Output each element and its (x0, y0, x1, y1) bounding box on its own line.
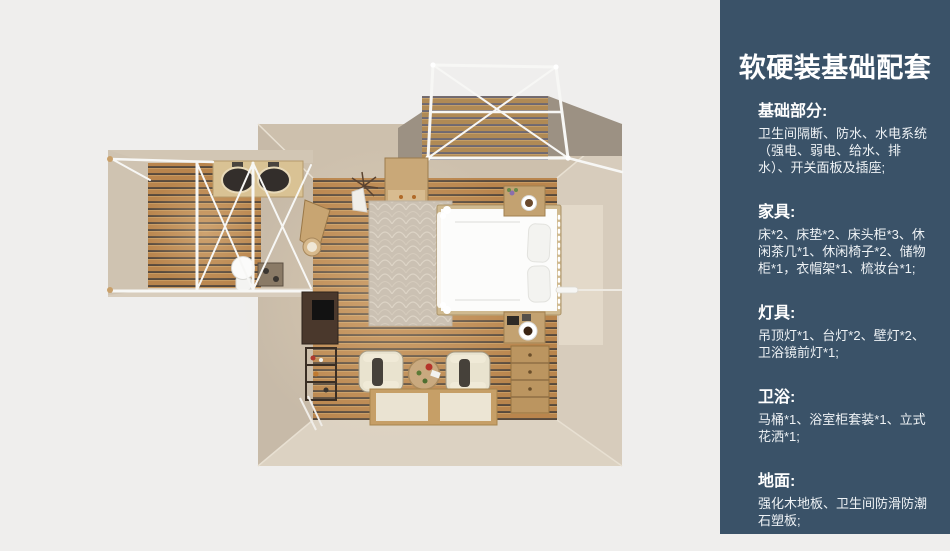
storage-cabinet (385, 158, 428, 203)
section-basics-heading: 基础部分: (758, 97, 932, 121)
section-lighting-heading: 灯具: (758, 299, 932, 323)
panel-title: 软硬装基础配套 (720, 46, 950, 85)
floorplan-svg (0, 0, 720, 534)
section-bathroom-body: 马桶*1、浴室柜套装*1、立式花洒*1; (758, 411, 932, 445)
section-flooring-body: 强化木地板、卫生间防滑防潮石塑板; (758, 495, 932, 529)
section-lighting: 灯具: 吊顶灯*1、台灯*2、壁灯*2、卫浴镜前灯*1; (758, 299, 932, 361)
double-bed (437, 205, 561, 315)
armchair-left (359, 351, 403, 392)
info-panel: 软硬装基础配套 基础部分: 卫生间隔断、防水、水电系统（强电、弱电、给水、排水）… (720, 0, 950, 534)
washer-stand (258, 263, 283, 286)
section-bathroom: 卫浴: 马桶*1、浴室柜套装*1、立式花洒*1; (758, 383, 932, 445)
section-basics: 基础部分: 卫生间隔断、防水、水电系统（强电、弱电、给水、排水）、开关面板及插座… (758, 97, 932, 176)
section-furniture-body: 床*2、床垫*2、床头柜*3、休闲茶几*1、休闲椅子*2、储物柜*1，衣帽架*1… (758, 226, 932, 277)
nightstand-bottom (504, 312, 545, 343)
section-furniture-heading: 家具: (758, 198, 932, 222)
double-sink-counter (213, 161, 303, 197)
panel-body: 基础部分: 卫生间隔断、防水、水电系统（强电、弱电、给水、排水）、开关面板及插座… (758, 97, 932, 551)
section-basics-body: 卫生间隔断、防水、水电系统（强电、弱电、给水、排水）、开关面板及插座; (758, 125, 932, 176)
wardrobe-door (559, 205, 603, 345)
desk (302, 292, 338, 344)
section-furniture: 家具: 床*2、床垫*2、床头柜*3、休闲茶几*1、休闲椅子*2、储物柜*1，衣… (758, 198, 932, 277)
section-lighting-body: 吊顶灯*1、台灯*2、壁灯*2、卫浴镜前灯*1; (758, 327, 932, 361)
floorplan-render (0, 0, 720, 534)
section-flooring-heading: 地面: (758, 467, 932, 491)
section-bathroom-heading: 卫浴: (758, 383, 932, 407)
floor-mats (370, 389, 497, 425)
armchair-right (446, 352, 490, 393)
nightstand-top (504, 186, 545, 216)
section-flooring: 地面: 强化木地板、卫生间防滑防潮石塑板; (758, 467, 932, 529)
dresser (511, 346, 549, 413)
round-tea-table (409, 359, 441, 390)
